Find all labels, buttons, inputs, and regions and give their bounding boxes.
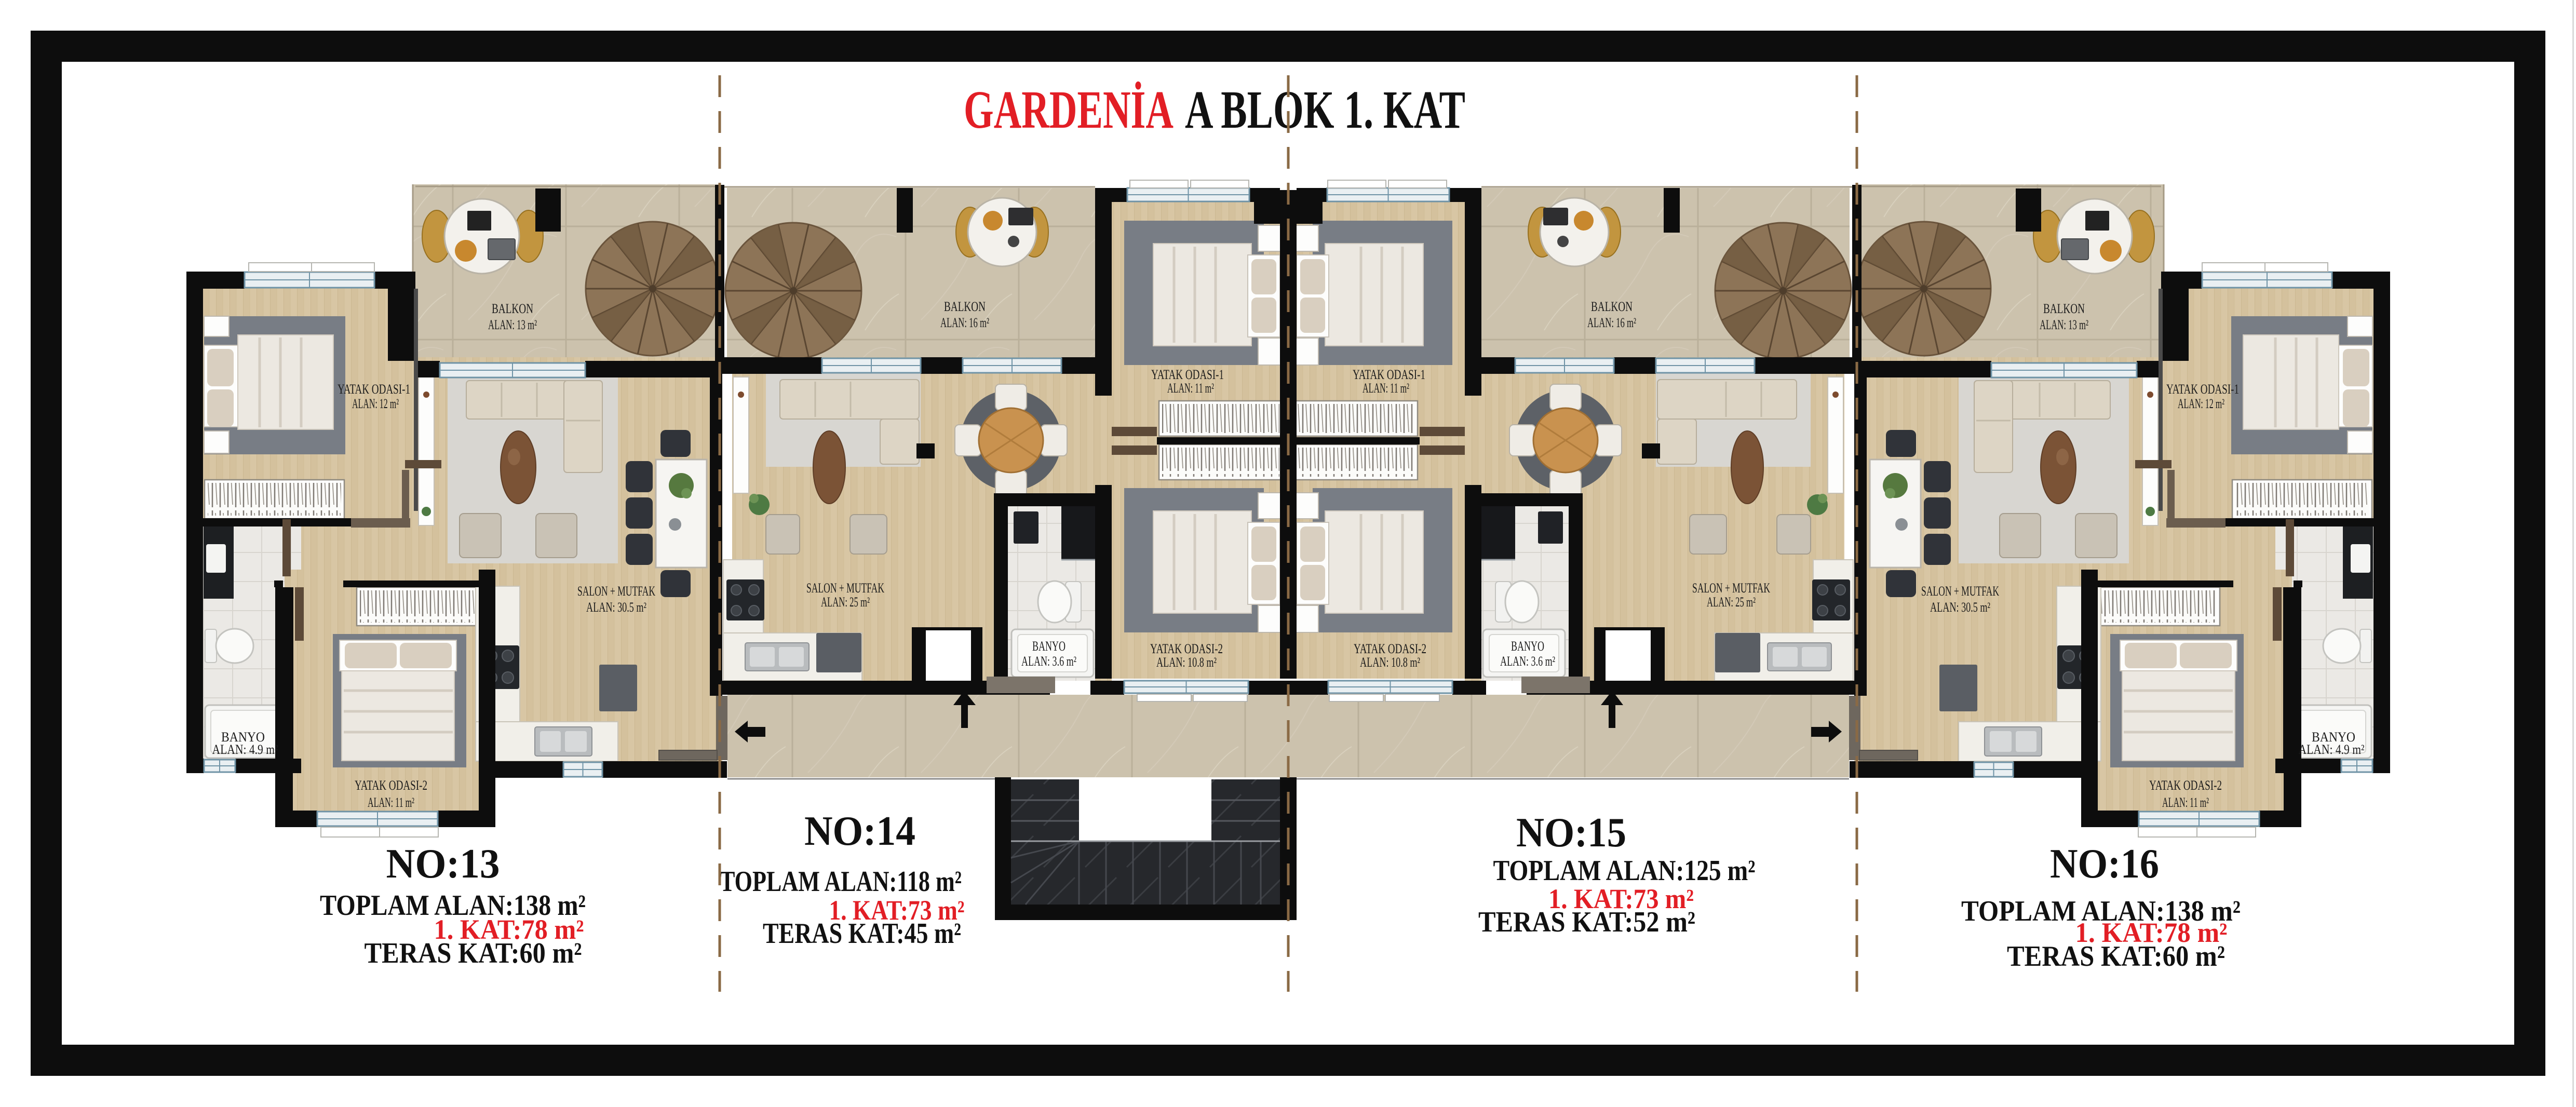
svg-text:ALAN: 10.8 m²: ALAN: 10.8 m² (1156, 655, 1217, 670)
svg-text:BANYO: BANYO (1511, 639, 1544, 654)
svg-text:ALAN: 25 m²: ALAN: 25 m² (1707, 595, 1756, 610)
svg-text:TOPLAM ALAN:125 m²: TOPLAM ALAN:125 m² (1493, 855, 1756, 887)
svg-text:BALKON: BALKON (944, 299, 986, 314)
svg-text:SALON + MUTFAK: SALON + MUTFAK (806, 580, 884, 596)
svg-text:TERAS KAT:60 m²: TERAS KAT:60 m² (365, 937, 582, 969)
svg-text:ALAN: 16 m²: ALAN: 16 m² (940, 315, 989, 330)
svg-text:BALKON: BALKON (1591, 299, 1633, 314)
svg-text:NO:16: NO:16 (2050, 841, 2159, 887)
svg-text:ALAN: 13 m²: ALAN: 13 m² (2040, 317, 2088, 332)
svg-text:ALAN: 11 m²: ALAN: 11 m² (2162, 795, 2209, 810)
svg-text:SALON + MUTFAK: SALON + MUTFAK (1921, 584, 1999, 599)
svg-text:TOPLAM ALAN:118 m²: TOPLAM ALAN:118 m² (720, 866, 962, 898)
svg-text:ALAN: 11 m²: ALAN: 11 m² (368, 795, 414, 810)
svg-text:YATAK ODASI-1: YATAK ODASI-1 (1353, 367, 1425, 382)
svg-text:TERAS KAT:45 m²: TERAS KAT:45 m² (763, 917, 961, 950)
svg-text:NO:13: NO:13 (386, 841, 500, 887)
svg-text:TERAS KAT:60 m²: TERAS KAT:60 m² (2007, 940, 2225, 973)
svg-text:ALAN: 3.6 m²: ALAN: 3.6 m² (1500, 654, 1555, 669)
svg-text:ALAN: 4.9 m²: ALAN: 4.9 m² (2299, 742, 2365, 757)
svg-text:BALKON: BALKON (492, 301, 533, 316)
svg-text:YATAK ODASI-1: YATAK ODASI-1 (2166, 382, 2239, 397)
svg-text:GARDENİA: GARDENİA (964, 80, 1174, 140)
svg-text:ALAN: 16 m²: ALAN: 16 m² (1587, 315, 1636, 330)
svg-text:NO:14: NO:14 (804, 808, 915, 854)
svg-text:ALAN: 12 m²: ALAN: 12 m² (352, 396, 399, 411)
svg-text:YATAK ODASI-2: YATAK ODASI-2 (355, 778, 427, 793)
svg-text:A BLOK 1. KAT: A BLOK 1. KAT (1185, 80, 1465, 140)
svg-text:ALAN: 13 m²: ALAN: 13 m² (488, 317, 537, 332)
svg-text:ALAN: 25 m²: ALAN: 25 m² (821, 595, 870, 610)
svg-text:SALON + MUTFAK: SALON + MUTFAK (1692, 580, 1770, 596)
svg-text:ALAN: 12 m²: ALAN: 12 m² (2178, 396, 2224, 411)
svg-text:ALAN: 30.5 m²: ALAN: 30.5 m² (1930, 600, 1990, 615)
svg-text:ALAN: 30.5 m²: ALAN: 30.5 m² (586, 600, 646, 615)
svg-text:YATAK ODASI-2: YATAK ODASI-2 (1354, 641, 1426, 656)
svg-text:ALAN: 4.9 m²: ALAN: 4.9 m² (212, 742, 278, 757)
svg-text:TERAS KAT:52 m²: TERAS KAT:52 m² (1478, 906, 1695, 938)
svg-text:SALON + MUTFAK: SALON + MUTFAK (577, 584, 655, 599)
svg-text:YATAK ODASI-2: YATAK ODASI-2 (2149, 778, 2222, 793)
svg-text:YATAK ODASI-1: YATAK ODASI-1 (1151, 367, 1224, 382)
svg-text:ALAN: 3.6 m²: ALAN: 3.6 m² (1021, 654, 1076, 669)
svg-text:BALKON: BALKON (2043, 301, 2085, 316)
svg-text:ALAN: 11 m²: ALAN: 11 m² (1167, 381, 1214, 396)
svg-text:ALAN: 11 m²: ALAN: 11 m² (1363, 381, 1409, 396)
svg-text:ALAN: 10.8 m²: ALAN: 10.8 m² (1360, 655, 1420, 670)
svg-text:YATAK ODASI-2: YATAK ODASI-2 (1150, 641, 1223, 656)
svg-text:BANYO: BANYO (1032, 639, 1066, 654)
svg-text:NO:15: NO:15 (1516, 810, 1626, 856)
svg-text:YATAK ODASI-1: YATAK ODASI-1 (338, 382, 410, 397)
